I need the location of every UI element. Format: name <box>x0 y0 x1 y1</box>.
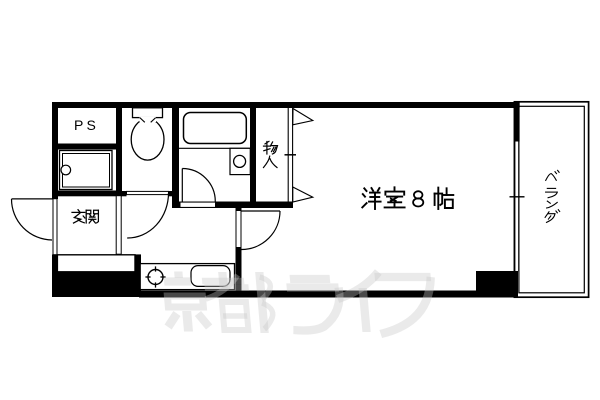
svg-text:PS: PS <box>74 117 99 133</box>
